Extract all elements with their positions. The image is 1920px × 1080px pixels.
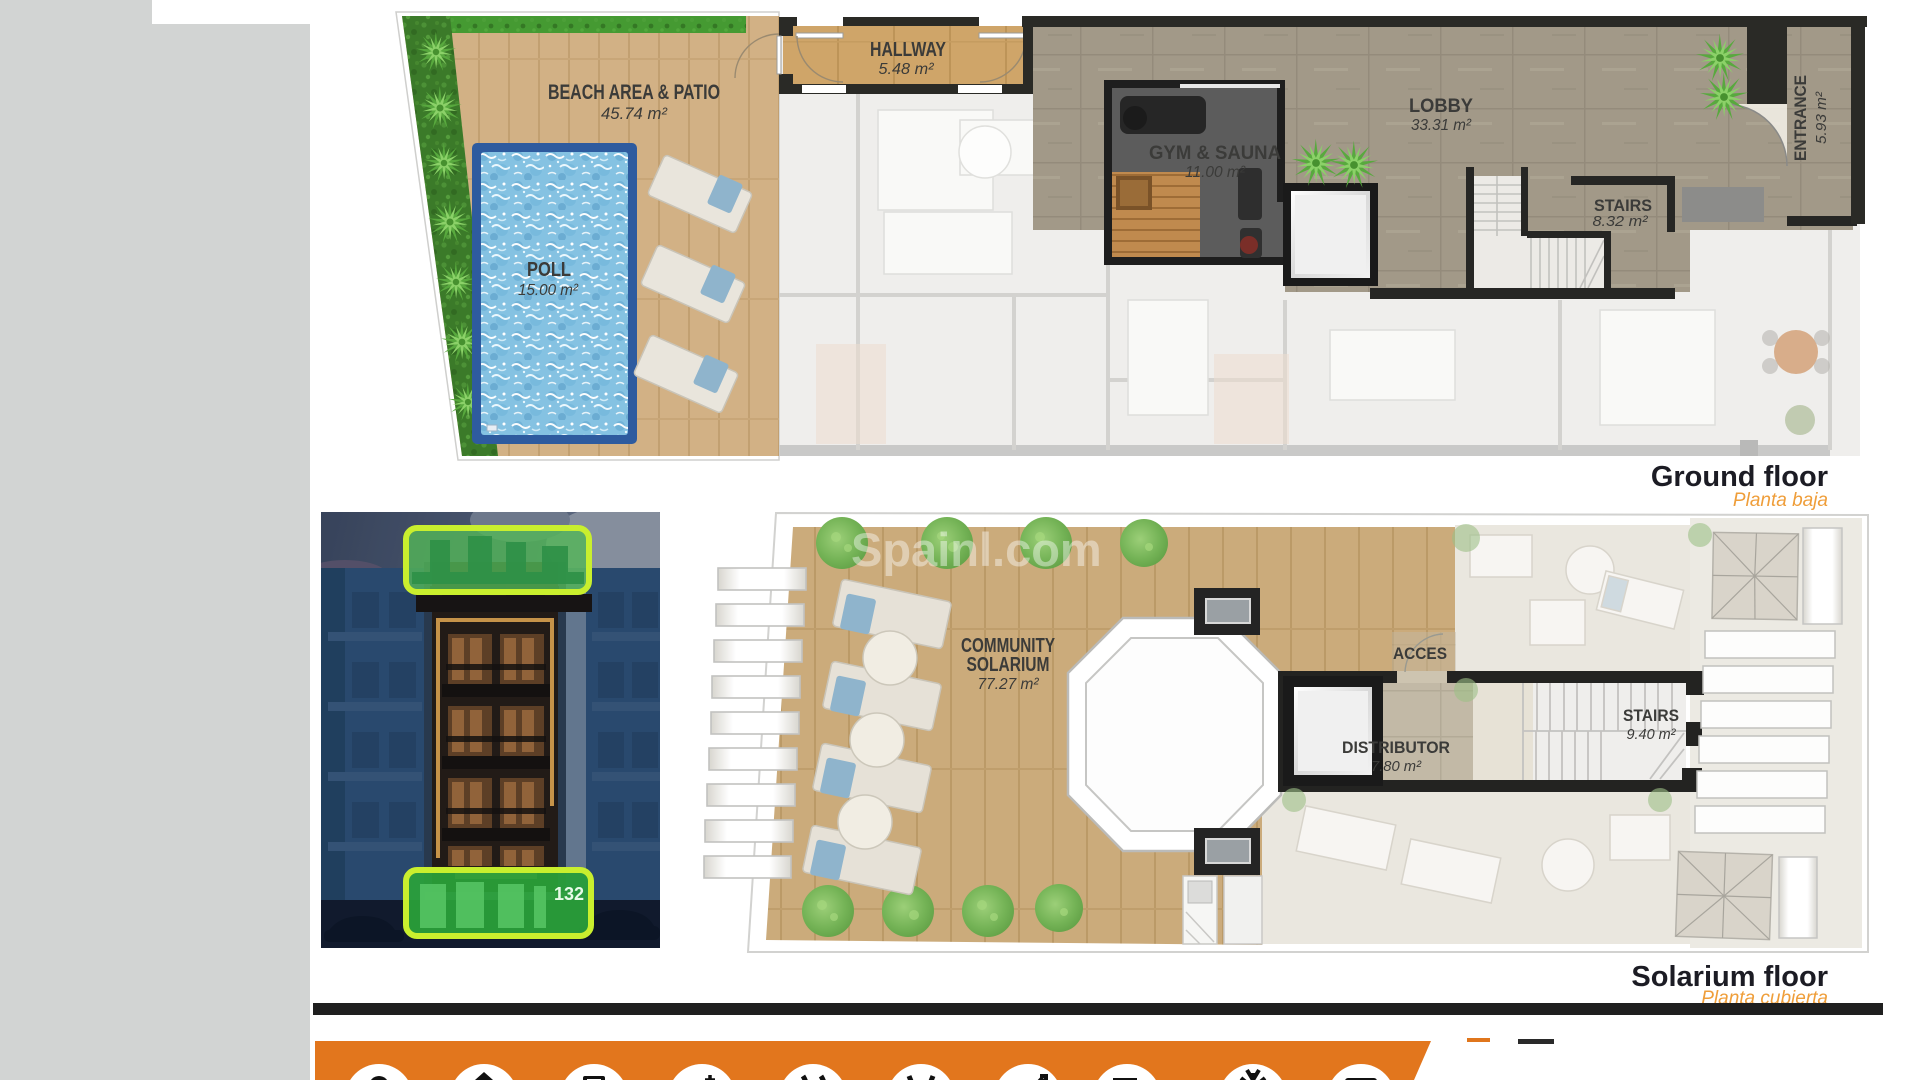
svg-text:8.32 m²: 8.32 m² <box>1593 213 1649 230</box>
svg-text:POLL: POLL <box>527 259 571 281</box>
svg-text:GYM & SAUNA: GYM & SAUNA <box>1149 143 1281 164</box>
svg-text:45.74 m²: 45.74 m² <box>601 104 668 123</box>
svg-text:DISTRIBUTOR: DISTRIBUTOR <box>1342 738 1450 757</box>
svg-text:5.93 m²: 5.93 m² <box>1813 91 1830 144</box>
svg-text:SOLARIUM: SOLARIUM <box>967 654 1050 676</box>
svg-text:5.48 m²: 5.48 m² <box>879 61 935 78</box>
svg-text:Ground floor: Ground floor <box>1651 461 1828 493</box>
svg-text:LOBBY: LOBBY <box>1409 96 1473 117</box>
svg-text:HALLWAY: HALLWAY <box>870 39 947 61</box>
svg-text:ENTRANCE: ENTRANCE <box>1791 75 1810 161</box>
svg-text:7.80 m²: 7.80 m² <box>1371 758 1422 775</box>
svg-text:33.31 m²: 33.31 m² <box>1411 117 1472 134</box>
svg-text:9.40 m²: 9.40 m² <box>1627 726 1677 743</box>
svg-text:ACCES: ACCES <box>1393 644 1447 663</box>
svg-text:BEACH AREA & PATIO: BEACH AREA & PATIO <box>548 81 720 104</box>
svg-text:11.00 m²: 11.00 m² <box>1185 164 1246 181</box>
svg-text:132: 132 <box>554 884 584 904</box>
svg-text:77.27 m²: 77.27 m² <box>978 676 1040 693</box>
svg-text:15.00 m²: 15.00 m² <box>518 282 579 299</box>
svg-text:Spainl.com: Spainl.com <box>851 523 1102 576</box>
svg-text:Planta baja: Planta baja <box>1733 490 1828 511</box>
svg-text:STAIRS: STAIRS <box>1623 706 1679 725</box>
